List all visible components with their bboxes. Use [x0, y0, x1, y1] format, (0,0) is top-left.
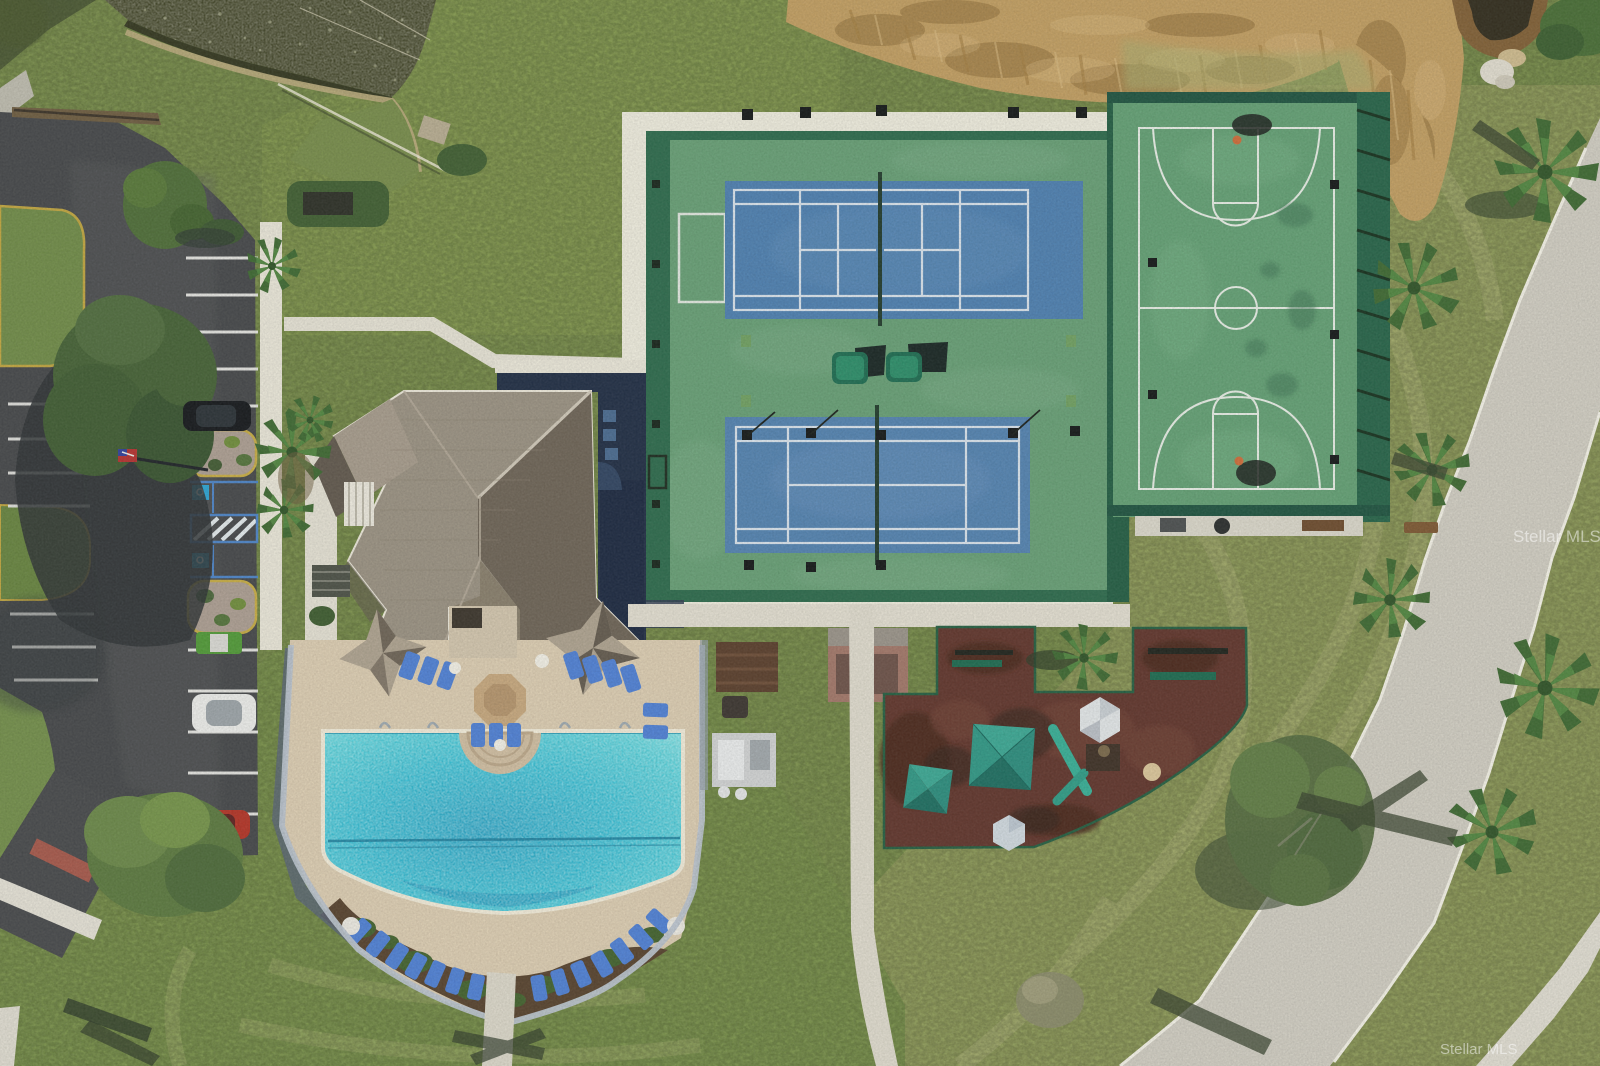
svg-text:Stellar MLS: Stellar MLS [1440, 1041, 1518, 1058]
svg-text:Stellar MLS: Stellar MLS [1513, 527, 1600, 546]
